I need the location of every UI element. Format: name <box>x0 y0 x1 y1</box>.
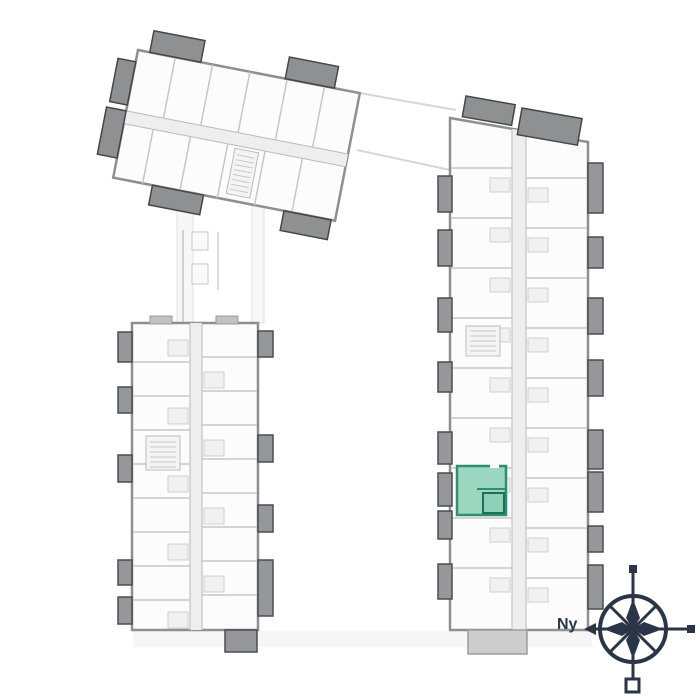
balcony <box>588 565 603 609</box>
balcony <box>438 298 452 332</box>
balcony <box>438 473 452 506</box>
bathroom-box <box>490 228 510 242</box>
bathroom-box <box>528 188 548 202</box>
bathroom-box <box>528 338 548 352</box>
balcony <box>438 176 452 212</box>
balcony <box>588 237 603 268</box>
balcony <box>438 432 452 464</box>
bathroom-box <box>528 388 548 402</box>
bathroom-box <box>204 508 224 524</box>
balcony <box>588 163 603 213</box>
bathroom-box <box>528 538 548 552</box>
unit-door-gap <box>490 464 499 468</box>
bathroom-box <box>168 612 188 628</box>
balcony <box>588 430 603 469</box>
balcony <box>118 597 132 624</box>
balcony <box>118 387 132 413</box>
bathroom-box <box>490 278 510 292</box>
wing-east-corridor <box>512 129 526 630</box>
bathroom-box <box>204 440 224 456</box>
stair-core <box>146 436 180 470</box>
roof-notch <box>216 316 238 324</box>
balcony <box>588 526 603 552</box>
bathroom-box <box>528 238 548 252</box>
stair-box <box>192 264 208 284</box>
balcony <box>225 630 257 652</box>
balcony <box>438 511 452 539</box>
unit-bathroom <box>483 493 504 513</box>
compass-marker-north <box>629 565 637 573</box>
bathroom-box <box>528 488 548 502</box>
compass-marker-east <box>687 625 695 633</box>
floor-plan-canvas: Ny <box>0 0 700 700</box>
bathroom-box <box>204 372 224 388</box>
street-label: Ny <box>557 616 577 634</box>
balcony <box>118 455 132 482</box>
balcony <box>438 564 452 599</box>
bathroom-box <box>204 576 224 592</box>
balcony <box>258 331 273 357</box>
roof-notch <box>150 316 172 324</box>
balcony <box>438 230 452 266</box>
stair-box <box>192 232 208 250</box>
bathroom-box <box>490 578 510 592</box>
site-line <box>359 93 456 110</box>
site-path-strip <box>252 204 264 323</box>
balcony <box>118 560 132 585</box>
balcony <box>588 472 603 512</box>
bathroom-box <box>490 428 510 442</box>
balcony <box>588 360 603 396</box>
bathroom-box <box>490 178 510 192</box>
bathroom-box <box>490 378 510 392</box>
floor-plan <box>0 0 700 700</box>
balcony <box>258 435 273 462</box>
bathroom-box <box>528 438 548 452</box>
wing-west-corridor <box>190 323 202 630</box>
balcony <box>588 298 603 334</box>
compass-marker-south <box>626 679 639 692</box>
bathroom-box <box>528 588 548 602</box>
bathroom-box <box>490 528 510 542</box>
balcony <box>258 560 273 616</box>
balcony <box>118 332 132 362</box>
bathroom-box <box>168 340 188 356</box>
terrace <box>468 630 527 654</box>
site-line <box>357 150 450 170</box>
bathroom-box <box>168 476 188 492</box>
bathroom-box <box>168 544 188 560</box>
balcony <box>258 505 273 532</box>
balcony <box>438 362 452 392</box>
bathroom-box <box>168 408 188 424</box>
bathroom-box <box>528 288 548 302</box>
